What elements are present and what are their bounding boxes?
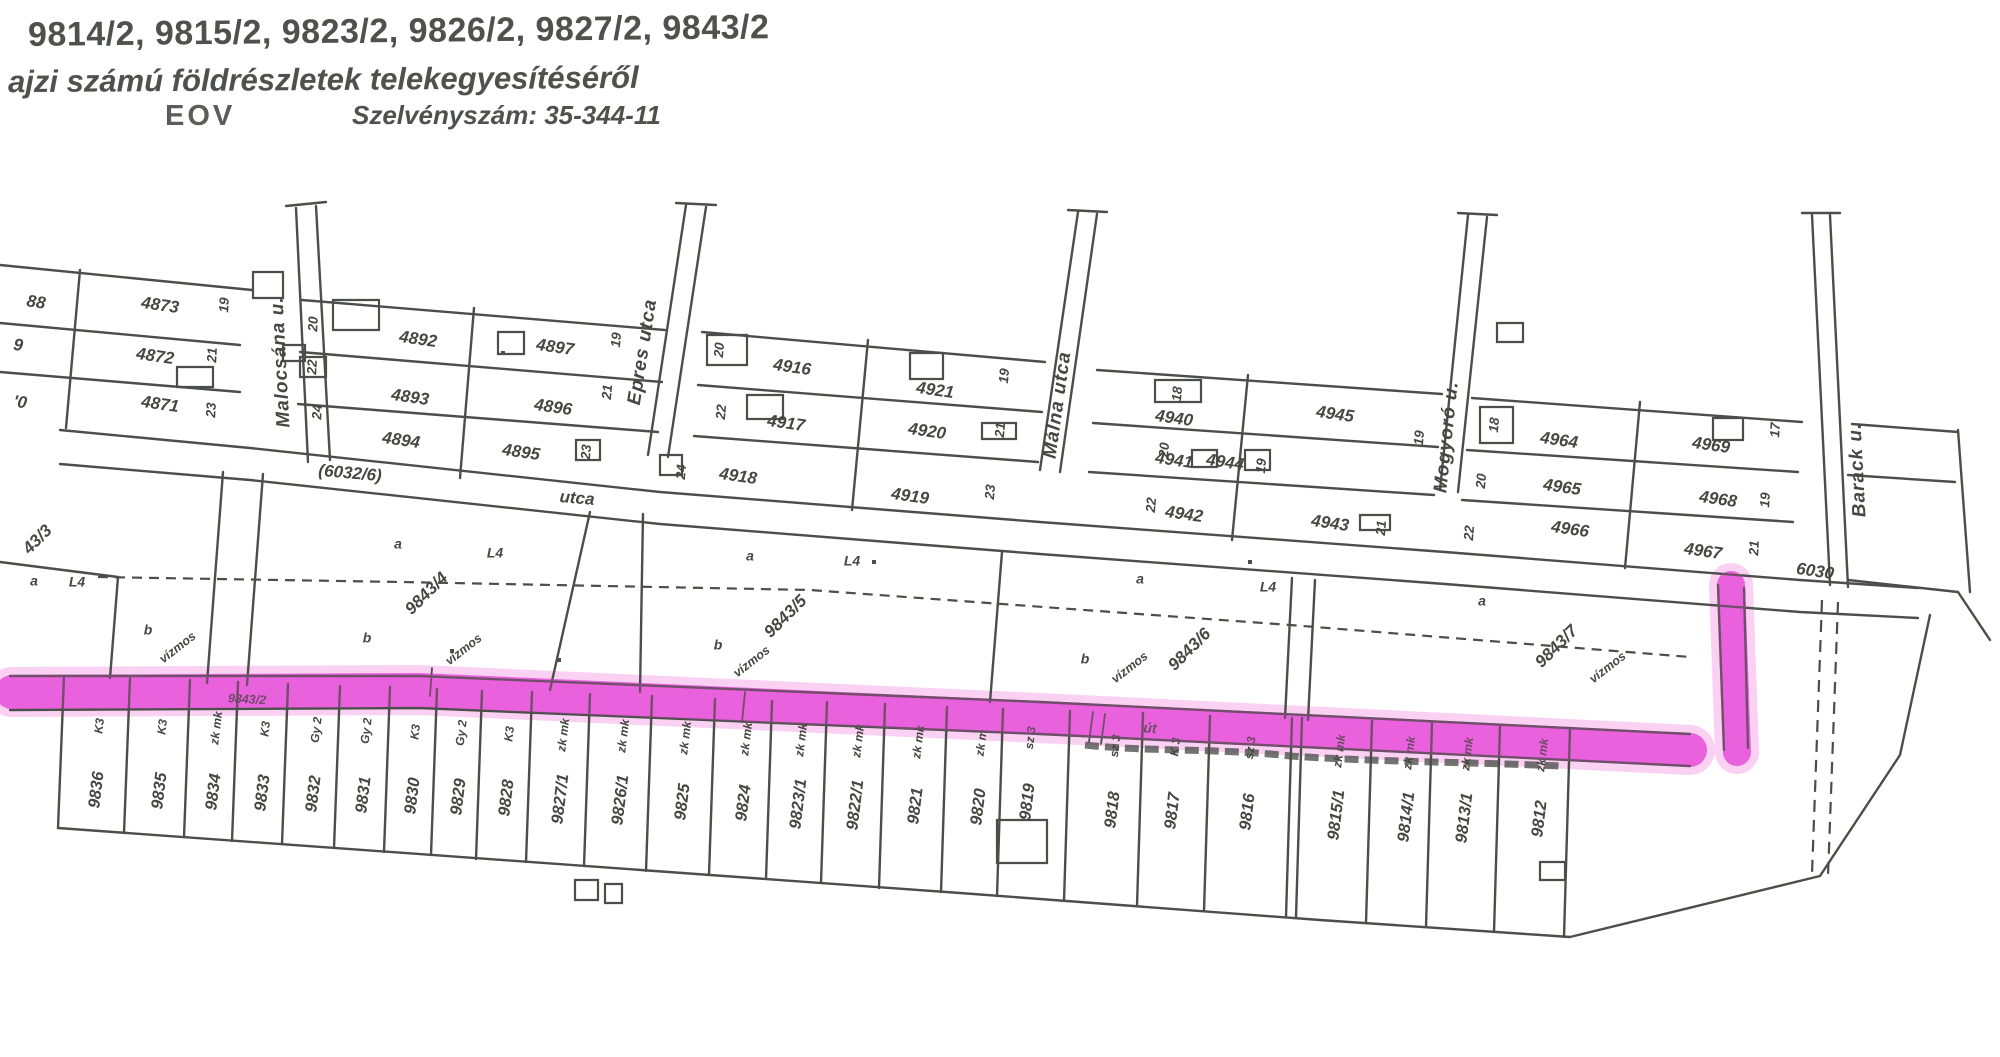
house-number-label: 19 bbox=[216, 297, 232, 313]
bottom-parcel-landuse-label: zk mk bbox=[849, 722, 867, 759]
bottom-parcel-landuse-label: K3 bbox=[91, 717, 107, 734]
parcel-number-label: 4968 bbox=[1697, 487, 1739, 511]
bottom-parcel-number-label: 9831 bbox=[352, 776, 374, 815]
right-track-dashed bbox=[1812, 600, 1838, 876]
parcel-number-label: 4896 bbox=[532, 395, 574, 419]
house-number-label: 20 bbox=[1473, 472, 1489, 490]
house-number-label: 22 bbox=[1461, 524, 1477, 542]
parcel-number-label: utca bbox=[559, 487, 595, 509]
parcel-number-label: 4917 bbox=[765, 411, 808, 435]
parcel-number-label: 4872 bbox=[134, 344, 176, 368]
bottom-parcel-landuse-label: K3 bbox=[257, 720, 273, 737]
bottom-parcel-number-label: 9832 bbox=[302, 775, 324, 814]
street-name-label: Barack u. bbox=[1845, 422, 1871, 518]
bottom-parcel-number-label: 9835 bbox=[148, 771, 170, 810]
parcel-number-label: 4964 bbox=[1538, 428, 1580, 452]
house-number-label: 22 bbox=[1143, 496, 1159, 514]
parcel-number-label: 4944 bbox=[1204, 450, 1246, 474]
bottom-parcel-number-label: 9815/1 bbox=[1324, 789, 1348, 841]
parcel-number-label: 4918 bbox=[717, 464, 759, 488]
bottom-parcel-number-label: 9828 bbox=[495, 778, 517, 817]
parcel-number-label: 9843/5 bbox=[760, 591, 811, 642]
parcel-number-label: 4916 bbox=[771, 355, 813, 379]
landuse-marker-label: b bbox=[1081, 651, 1090, 667]
bottom-parcel-number-label: 9820 bbox=[967, 787, 989, 826]
landuse-marker-label: a bbox=[1136, 571, 1144, 587]
bottom-parcel-number-label: 9827/1 bbox=[548, 773, 572, 825]
parcel-number-label: 9843/6 bbox=[1164, 624, 1215, 675]
landuse-marker-label: b bbox=[363, 630, 372, 646]
parcel-number-label: 4921 bbox=[914, 378, 955, 402]
bottom-parcel-landuse-label: zk m bbox=[972, 728, 989, 758]
bottom-parcel-number-label: 9826/1 bbox=[608, 774, 632, 826]
house-number-label: 19 bbox=[608, 331, 624, 348]
bottom-parcel-number-label: 9814/1 bbox=[1394, 791, 1418, 843]
bottom-parcel-landuse-label: K3 bbox=[154, 718, 170, 735]
bottom-parcel-number-label: 9829 bbox=[447, 777, 469, 816]
bottom-parcel-landuse-label: zk mk bbox=[676, 719, 694, 756]
parcel-number-label: 4892 bbox=[397, 327, 439, 351]
bottom-parcel-number-label: 9817 bbox=[1161, 791, 1183, 830]
parcel-number-label: 4871 bbox=[139, 392, 180, 416]
bottom-parcel-landuse-label: zk mk bbox=[737, 720, 755, 757]
house-number-label: 19 bbox=[1411, 429, 1427, 446]
parcel-number-label: 9843/4 bbox=[401, 568, 452, 619]
parcel-number-label: 4920 bbox=[906, 419, 948, 443]
landuse-marker-label: L4 bbox=[1260, 579, 1277, 595]
house-number-label: 21 bbox=[1746, 540, 1762, 557]
bottom-parcel-number-label: 9823/1 bbox=[786, 778, 810, 830]
subparcel-dashed-line bbox=[98, 577, 1690, 657]
house-number-label: 23 bbox=[203, 402, 219, 419]
landuse-marker-label: a bbox=[394, 536, 402, 552]
bottom-parcel-number-label: 9822/1 bbox=[843, 779, 867, 831]
house-number-label: 20 bbox=[305, 316, 321, 333]
street-name-label: Epres utca bbox=[624, 297, 662, 406]
bottom-parcel-landuse-label: zk mk bbox=[792, 721, 810, 758]
landuse-marker-label: L4 bbox=[69, 574, 86, 590]
annotation-label: vízmos bbox=[731, 643, 773, 680]
scanned-cadastral-sheet: 9814/2, 9815/2, 9823/2, 9826/2, 9827/2, … bbox=[0, 0, 2000, 1057]
annotation-label: vízmos bbox=[443, 631, 485, 668]
parcel-number-label: 4895 bbox=[500, 440, 542, 464]
house-number-label: 21 bbox=[599, 384, 615, 401]
bottom-parcel-number-label: 9836 bbox=[85, 770, 107, 809]
landuse-marker-label: L4 bbox=[487, 545, 504, 561]
house-number-label: 20 bbox=[711, 341, 727, 359]
annotation-label: vízmos bbox=[1109, 649, 1151, 686]
parcel-number-label: 4945 bbox=[1314, 402, 1356, 426]
bottom-parcel-landuse-label: K3 bbox=[501, 725, 517, 742]
parcel-number-label: '0 bbox=[12, 392, 29, 413]
parcel-number-label: 4873 bbox=[139, 293, 181, 317]
house-number-label: 22 bbox=[304, 359, 320, 376]
parcel-number-label: 4919 bbox=[889, 484, 931, 508]
bottom-parcel-landuse-label: K3 bbox=[407, 723, 423, 740]
parcel-number-label: 4967 bbox=[1682, 539, 1725, 563]
bottom-parcel-landuse-label: zk mk bbox=[614, 717, 632, 754]
bottom-parcel-number-label: 9833 bbox=[251, 774, 273, 813]
house-number-label: 20 bbox=[1156, 441, 1172, 459]
bottom-parcel-landuse-label: Gy 2 bbox=[308, 716, 325, 744]
house-number-label: 23 bbox=[578, 443, 594, 461]
landuse-marker-label: a bbox=[746, 548, 754, 564]
bottom-parcel-landuse-label: zk mk bbox=[207, 709, 225, 746]
house-number-label: 21 bbox=[204, 347, 220, 364]
annotation-label: vízmos bbox=[1587, 649, 1629, 686]
parcel-number-label: 4969 bbox=[1690, 433, 1732, 457]
annotation-label: vízmos bbox=[157, 629, 199, 666]
bottom-parcel-number-label: 9812 bbox=[1528, 800, 1550, 839]
street-name-label: Malocsána u. bbox=[267, 296, 295, 428]
bottom-parcel-number-label: 9816 bbox=[1236, 792, 1258, 831]
bottom-parcel-number-label: 9813/1 bbox=[1452, 792, 1476, 844]
house-number-label: 24 bbox=[673, 463, 689, 481]
bottom-parcel-number-label: 9830 bbox=[401, 776, 423, 815]
parcel-number-label: 4966 bbox=[1549, 517, 1591, 541]
house-number-label: 19 bbox=[996, 367, 1012, 384]
house-number-label: 17 bbox=[1767, 421, 1783, 438]
bottom-parcel-number-label: 9818 bbox=[1101, 790, 1123, 829]
house-number-label: 23 bbox=[982, 483, 998, 501]
highlight-strip-arm-wash bbox=[1731, 585, 1737, 752]
parcel-number-label: 9843/7 bbox=[1531, 620, 1582, 671]
landuse-marker-label: a bbox=[30, 573, 38, 589]
bottom-parcel-landuse-label: Gy 2 bbox=[453, 719, 470, 747]
parcel-number-label: (6032/6) bbox=[318, 461, 383, 485]
bottom-parcel-landuse-label: zk mk bbox=[554, 716, 572, 753]
bottom-parcel-number-label: 9824 bbox=[732, 784, 754, 823]
parcel-number-label: 4894 bbox=[380, 428, 422, 452]
parcel-number-label: 4943 bbox=[1309, 511, 1351, 535]
house-number-label: 18 bbox=[1169, 385, 1185, 402]
bottom-parcel-number-label: 9819 bbox=[1016, 782, 1038, 821]
bottom-parcel-landuse-label: Gy 2 bbox=[358, 717, 375, 745]
bottom-parcel-number-label: 9825 bbox=[671, 782, 693, 821]
parcel-number-label: 4942 bbox=[1163, 502, 1205, 526]
house-number-label: 21 bbox=[992, 422, 1008, 439]
parcel-number-label: 4897 bbox=[534, 335, 577, 359]
house-number-label: 24 bbox=[309, 404, 325, 421]
landuse-marker-label: a bbox=[1478, 593, 1486, 609]
landuse-marker-label: b bbox=[714, 637, 723, 653]
landuse-marker-label: b bbox=[144, 622, 153, 638]
parcel-number-label: 9 bbox=[12, 335, 25, 355]
landuse-marker-label: L4 bbox=[844, 553, 861, 569]
parcel-number-label: 4893 bbox=[389, 385, 431, 409]
house-number-label: 19 bbox=[1253, 457, 1269, 474]
house-number-label: 19 bbox=[1757, 492, 1773, 508]
cadastral-map-canvas: 487348724871889'019212348924893489448974… bbox=[0, 0, 2000, 1057]
house-number-label: 18 bbox=[1486, 416, 1502, 433]
house-number-label: 21 bbox=[1373, 520, 1389, 537]
house-number-label: 22 bbox=[713, 403, 729, 421]
parcel-number-label: 4965 bbox=[1541, 475, 1583, 499]
bottom-parcel-number-label: 9821 bbox=[904, 787, 926, 826]
parcel-number-label: 43/3 bbox=[18, 520, 56, 558]
street-name-label: Mogyoró u. bbox=[1430, 380, 1463, 494]
bottom-parcel-number-label: 9834 bbox=[202, 773, 224, 812]
parcel-number-label: 88 bbox=[25, 291, 47, 313]
